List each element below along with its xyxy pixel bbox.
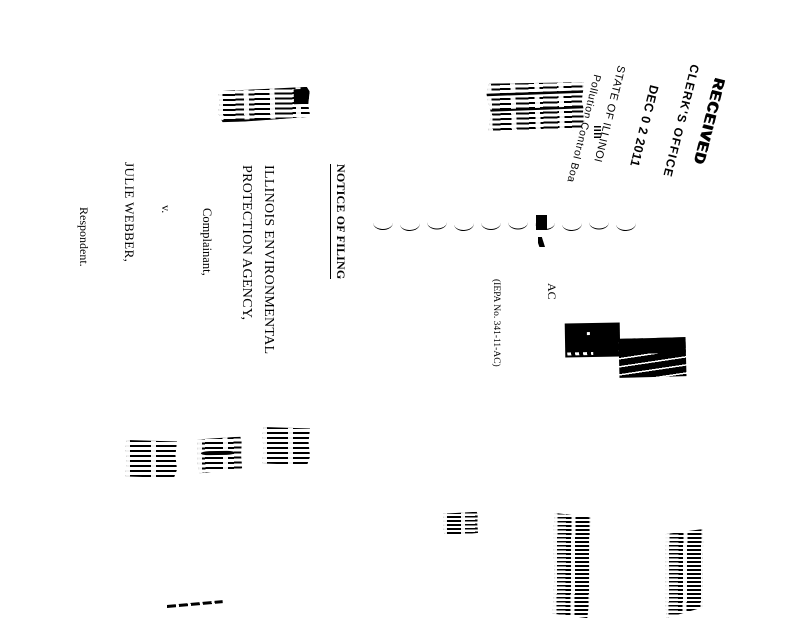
- dashed-line-fragment: [167, 600, 223, 608]
- smudge-block-lower-left-2: [197, 437, 243, 474]
- paren-mark: [589, 222, 609, 230]
- smudge-strip-bottom-right: [665, 529, 704, 618]
- smudge-block-top-left: [218, 87, 311, 123]
- caption-docket-prefix: AC: [544, 283, 558, 300]
- paren-mark: [481, 222, 501, 230]
- stamp-date-text: DEC 0 2 2011: [627, 84, 661, 169]
- smudge-block-lower-left-3: [262, 427, 310, 465]
- ink-blot-on-paren-row: [536, 215, 547, 230]
- paren-mark: [562, 223, 582, 232]
- paren-mark: [454, 223, 474, 232]
- smudge-strip-bottom-left: [553, 513, 591, 618]
- smudge-block-lower-left-1: [125, 440, 177, 478]
- caption-complainant-role: Complainant,: [200, 208, 214, 276]
- smudge-tick-top-right: [594, 126, 601, 140]
- paren-mark: [373, 222, 393, 230]
- caption-respondent-name: JULIE WEBBER,: [121, 162, 136, 262]
- paren-mark: [427, 222, 447, 230]
- caption-complainant-name-line1: ILLINOIS ENVIRONMENTAL: [260, 165, 276, 354]
- ink-blob-right: [619, 337, 687, 378]
- ink-tick-below-paren-row: [538, 237, 545, 247]
- caption-iepa-number: (IEPA No. 341-11-AC): [490, 279, 501, 367]
- smudge-block-bottom-middle: [443, 512, 478, 537]
- ink-blob-left: [565, 323, 621, 358]
- smudge-block-top-right: [486, 80, 586, 133]
- caption-versus: v.: [158, 205, 172, 213]
- caption-paren-row: [373, 217, 643, 229]
- notice-of-filing-title: NOTICE OF FILING: [330, 164, 347, 279]
- paren-mark: [508, 222, 528, 230]
- paren-mark: [616, 223, 636, 232]
- scanned-document-page: { "page": { "background": "#ffffff", "in…: [0, 0, 800, 618]
- caption-respondent-role: Respondent.: [76, 207, 90, 267]
- paren-mark: [400, 223, 420, 232]
- caption-complainant-name-line2: PROTECTION AGENCY,: [238, 165, 254, 320]
